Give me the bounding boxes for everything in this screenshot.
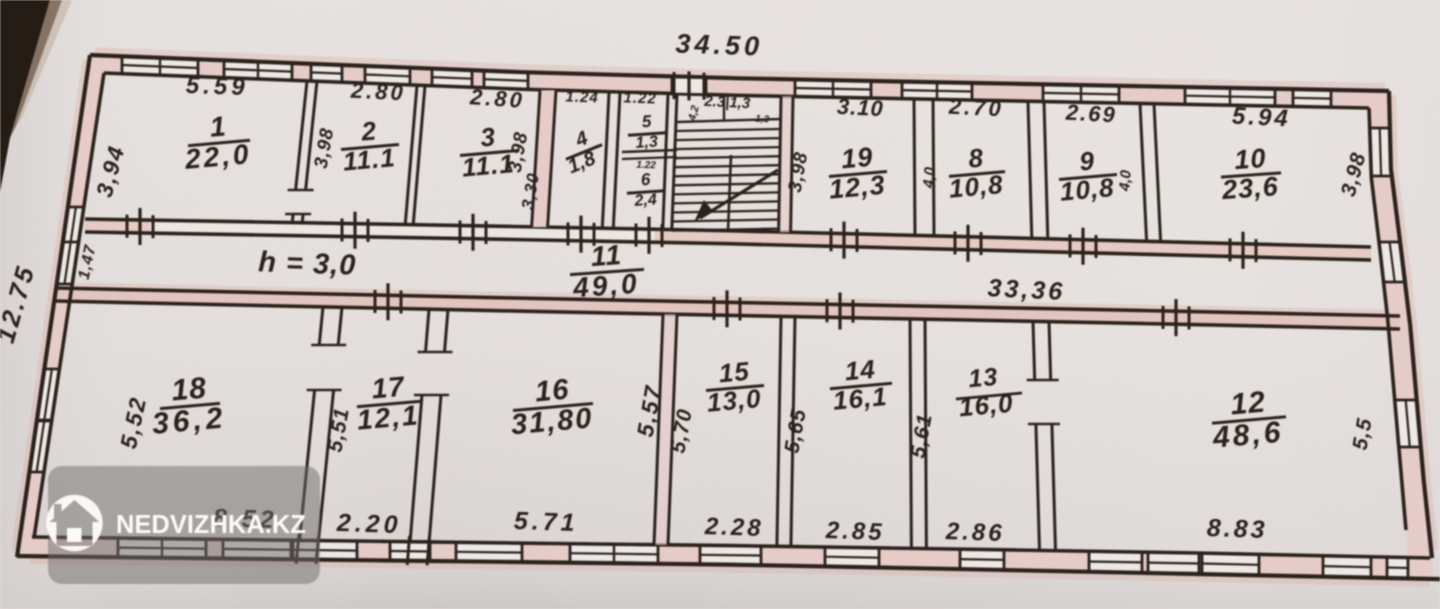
svg-text:NEDVIZHKA.KZ: NEDVIZHKA.KZ: [116, 511, 306, 539]
